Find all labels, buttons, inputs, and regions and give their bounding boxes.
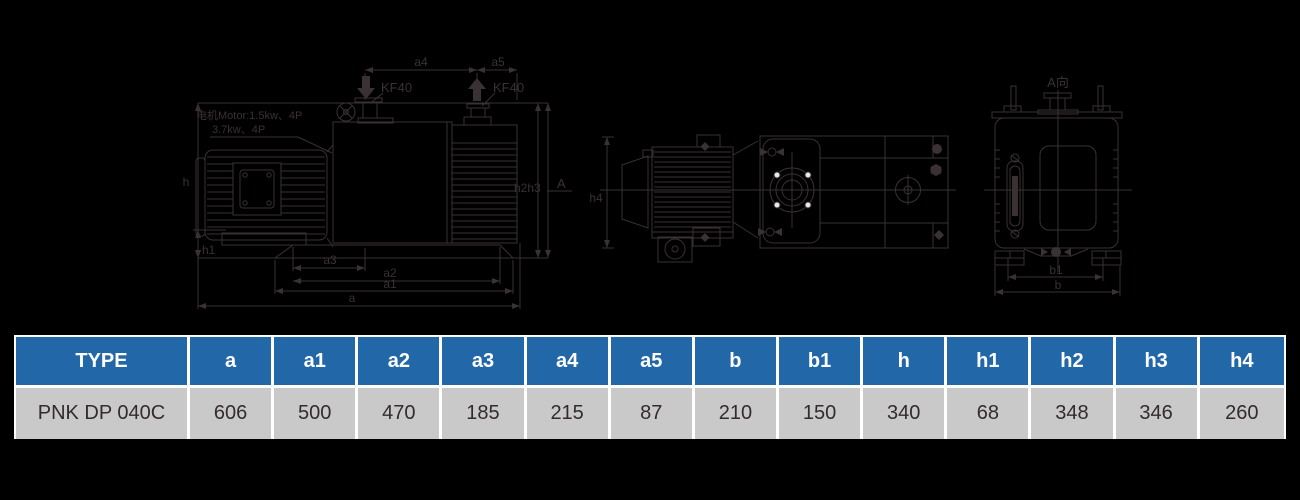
col-header-b1: b1 — [779, 337, 863, 388]
motor-note-line2: 3.7kw、4P — [212, 124, 265, 136]
cell-a4: 215 — [527, 388, 611, 439]
col-header-h3: h3 — [1116, 337, 1200, 388]
side-view: a4 a5 KF40 KF40 电机Motor:1.5kw、4P 3.7kw、4… — [183, 55, 572, 309]
cell-a3: 185 — [442, 388, 526, 439]
col-header-a: a — [190, 337, 274, 388]
dim-label-h4: h4 — [589, 191, 603, 205]
technical-drawing: a4 a5 KF40 KF40 电机Motor:1.5kw、4P 3.7kw、4… — [0, 0, 1300, 332]
col-header-h: h — [863, 337, 947, 388]
cell-h3: 346 — [1116, 388, 1200, 439]
col-header-h4: h4 — [1200, 337, 1284, 388]
cell-h: 340 — [863, 388, 947, 439]
exhaust-port — [467, 104, 489, 108]
cell-a: 606 — [190, 388, 274, 439]
exhaust-flow-arrow-icon — [468, 78, 486, 101]
cell-h2: 348 — [1031, 388, 1115, 439]
col-header-a1: a1 — [274, 337, 358, 388]
inlet-flange-label: KF40 — [381, 80, 412, 95]
inlet-port — [355, 98, 382, 102]
cell-h4: 260 — [1200, 388, 1284, 439]
table-header-row: TYPE a a1 a2 a3 a4 a5 b b1 h h1 h2 h3 h4 — [16, 337, 1284, 388]
cell-a5: 87 — [611, 388, 695, 439]
view-label-a: A向 — [1047, 75, 1069, 90]
cell-b1: 150 — [779, 388, 863, 439]
table-row: PNK DP 040C 606 500 470 185 215 87 210 1… — [16, 388, 1284, 439]
dim-label-h: h — [183, 175, 190, 189]
col-header-b: b — [695, 337, 779, 388]
dim-label-h1: h1 — [202, 243, 216, 257]
end-view: A向 — [984, 75, 1132, 296]
exhaust-flange-label: KF40 — [493, 80, 524, 95]
col-header-h2: h2 — [1031, 337, 1115, 388]
pump-base — [275, 245, 513, 258]
col-header-a2: a2 — [358, 337, 442, 388]
cell-a2: 470 — [358, 388, 442, 439]
dim-label-b1: b1 — [1049, 263, 1063, 277]
inlet-flow-arrow-icon — [357, 76, 375, 99]
dim-label-a: a — [349, 291, 356, 305]
col-header-a4: a4 — [527, 337, 611, 388]
dim-label-a1: a1 — [383, 277, 397, 291]
dim-label-a3: a3 — [323, 253, 337, 267]
dim-label-a5: a5 — [491, 55, 505, 69]
section-label-a: A — [557, 176, 566, 191]
col-header-a3: a3 — [442, 337, 526, 388]
dimension-table: TYPE a a1 a2 a3 a4 a5 b b1 h h1 h2 h3 h4 — [14, 335, 1286, 439]
cell-h1: 68 — [947, 388, 1031, 439]
cell-type: PNK DP 040C — [16, 388, 190, 439]
motor-note-line1: 电机Motor:1.5kw、4P — [196, 108, 302, 122]
gas-ballast-box — [658, 237, 692, 262]
col-header-type: TYPE — [16, 337, 190, 388]
drain-plug — [1051, 247, 1061, 257]
col-header-a5: a5 — [611, 337, 695, 388]
page: a4 a5 KF40 KF40 电机Motor:1.5kw、4P 3.7kw、4… — [0, 0, 1300, 500]
dim-label-h2h3: h2h3 — [514, 181, 541, 195]
top-view: h4 — [589, 135, 956, 262]
cell-b: 210 — [695, 388, 779, 439]
dim-label-a4: a4 — [414, 55, 428, 69]
cell-a1: 500 — [274, 388, 358, 439]
dim-label-b: b — [1055, 278, 1062, 292]
col-header-h1: h1 — [947, 337, 1031, 388]
